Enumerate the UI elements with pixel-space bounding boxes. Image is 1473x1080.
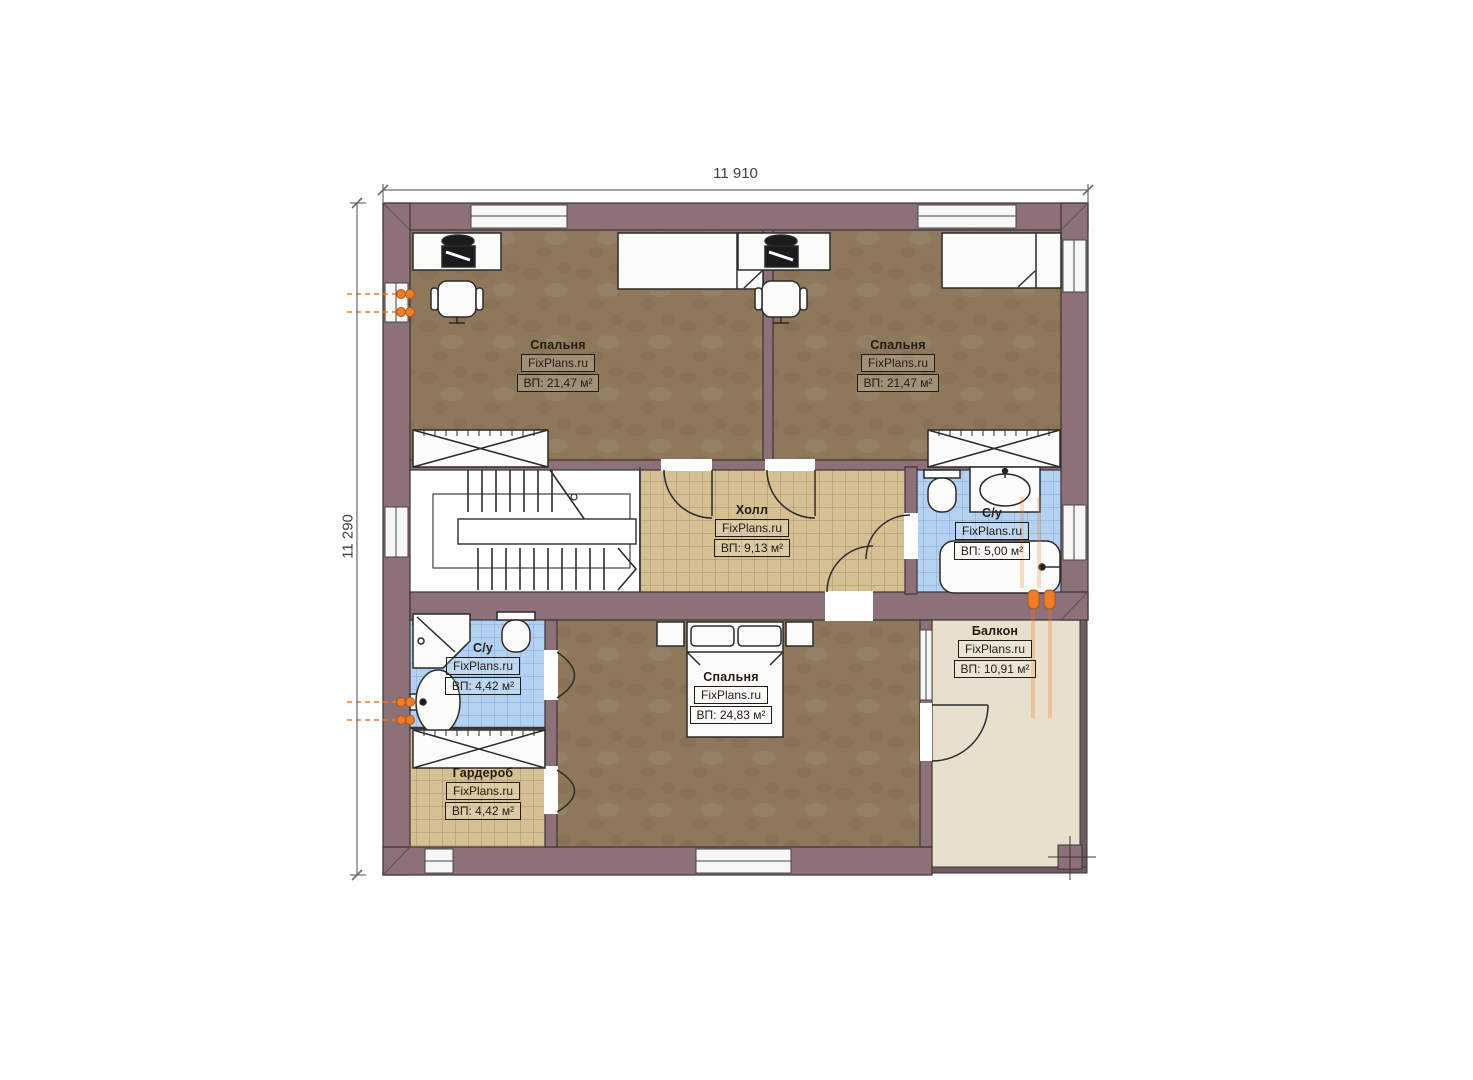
- dimension-width-value: 11 910: [713, 165, 758, 182]
- window: [385, 507, 408, 557]
- nightstand-icon: [786, 622, 813, 646]
- nightstand-icon: [657, 622, 684, 646]
- printer-icon: [765, 235, 798, 267]
- floor-plan-page: 11 910 11 290 Спальня FixPlans.ru ВП: 21…: [0, 0, 1473, 1080]
- window: [920, 630, 932, 700]
- bed-icon: [942, 233, 1061, 288]
- bathtub-icon: [940, 541, 1060, 593]
- floor-hall: [640, 467, 905, 592]
- window: [696, 849, 791, 873]
- double-bed-icon: [687, 622, 783, 737]
- wardrobe-icon: [413, 430, 548, 467]
- floor-plan-drawing: [0, 0, 1473, 1080]
- floor-balcony: [932, 620, 1084, 871]
- dimension-height-label: 11 290: [340, 487, 357, 587]
- toilet-icon: [924, 470, 960, 512]
- window: [1063, 505, 1086, 560]
- dimension-width-label: 11 910: [383, 165, 1088, 182]
- window: [918, 205, 1016, 228]
- printer-icon: [442, 235, 475, 267]
- dimension-line-top: [378, 184, 1093, 202]
- stairs-landing: [458, 519, 636, 544]
- sink-vanity-icon: [970, 467, 1040, 512]
- wall-bottom: [383, 847, 932, 875]
- window: [1063, 240, 1086, 292]
- window: [425, 849, 453, 873]
- window: [471, 205, 567, 228]
- window-niche: [385, 283, 408, 322]
- dimension-height-value: 11 290: [340, 514, 357, 559]
- wardrobe-icon: [413, 730, 545, 768]
- wardrobe-icon: [928, 430, 1060, 467]
